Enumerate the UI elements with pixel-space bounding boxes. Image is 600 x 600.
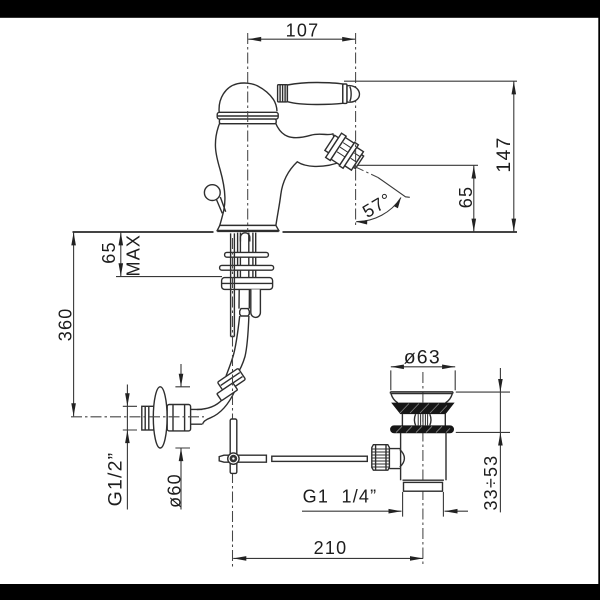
svg-text:210: 210 [314, 538, 348, 558]
svg-text:65: 65 [456, 186, 476, 208]
svg-text:360: 360 [56, 308, 76, 342]
svg-text:147: 147 [493, 136, 515, 172]
svg-text:107: 107 [286, 21, 320, 41]
svg-text:MAX: MAX [124, 234, 144, 277]
svg-text:65: 65 [99, 241, 119, 263]
svg-text:G1/2”: G1/2” [105, 452, 127, 507]
svg-text:ø63: ø63 [404, 347, 441, 369]
svg-text:G1 1/4”: G1 1/4” [303, 487, 378, 507]
svg-text:ø60: ø60 [165, 473, 185, 508]
svg-text:33÷53: 33÷53 [481, 455, 501, 511]
